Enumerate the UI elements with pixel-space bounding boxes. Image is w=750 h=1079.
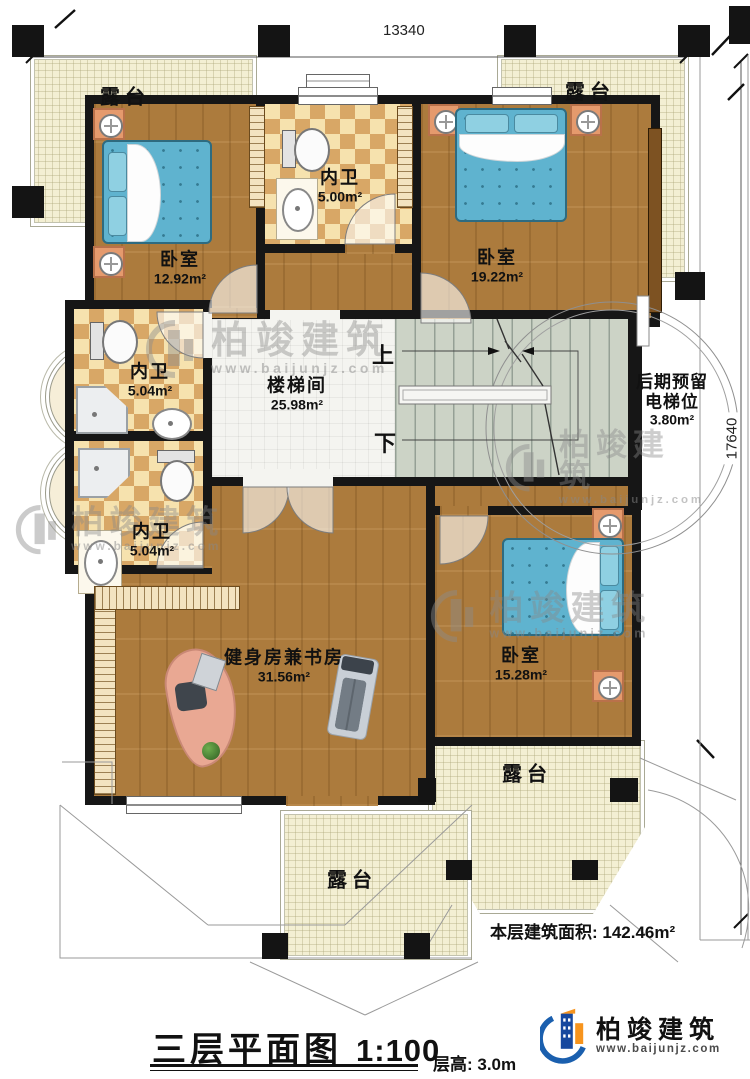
pillow xyxy=(600,590,619,630)
terrace-door-panel xyxy=(648,128,662,313)
door-gap-bath-low xyxy=(203,524,212,568)
room-name: 电梯位 xyxy=(636,392,708,412)
room-name: 楼梯间 xyxy=(267,376,327,397)
drain-dot xyxy=(168,421,173,426)
toilet-bath-mid xyxy=(90,318,138,362)
drain-dot xyxy=(94,466,99,471)
terrace-label-bottom-right: 露台 xyxy=(502,758,552,787)
pillow xyxy=(514,114,558,133)
toilet-bath-low xyxy=(155,450,195,502)
drain-dot xyxy=(295,206,300,211)
plant-icon xyxy=(202,742,220,760)
roof-edge-right xyxy=(700,55,750,940)
room-label-bath-mid: 内卫 5.04m² xyxy=(128,362,172,399)
dimension-top-value: 13340 xyxy=(378,22,430,39)
column xyxy=(675,272,705,300)
opening-hall-stairwell xyxy=(270,310,340,320)
title-scale: 1:100 xyxy=(356,1033,440,1068)
toilet-bath-top xyxy=(282,126,330,170)
nightstand xyxy=(93,246,125,278)
bed-sheet xyxy=(459,134,565,162)
column xyxy=(262,933,288,959)
room-area: 3.80m² xyxy=(636,412,708,428)
room-area: 15.28m² xyxy=(495,666,547,682)
room-label-bath-low: 内卫 5.04m² xyxy=(130,522,174,559)
room-label-gym: 健身房兼书房 31.56m² xyxy=(224,648,344,685)
floor-area-text: 本层建筑面积: 142.46m² xyxy=(490,918,675,943)
window-gym-bottom xyxy=(126,796,242,814)
room-name: 后期预留 xyxy=(636,372,708,392)
room-name: 卧室 xyxy=(495,646,547,667)
column xyxy=(258,25,290,57)
sink-bath-mid xyxy=(152,408,192,440)
room-label-bedroom-top-left: 卧室 12.92m² xyxy=(154,250,206,287)
closet-bath-top xyxy=(397,106,413,208)
room-area: 5.04m² xyxy=(130,542,174,558)
wall-segment xyxy=(85,565,94,805)
column xyxy=(418,778,436,802)
sink-bath-low xyxy=(84,540,118,586)
door-gap-gym-double xyxy=(243,469,333,487)
stair-down-label: 下 xyxy=(374,426,396,458)
wardrobe-gym-vertical xyxy=(94,590,116,795)
sink-bath-top xyxy=(282,188,314,232)
window-bath-top xyxy=(298,87,378,105)
column xyxy=(729,6,750,44)
door-gap-bath-mid xyxy=(203,312,212,358)
closet-bedroom-top-left xyxy=(249,106,265,208)
drain-dot xyxy=(98,559,103,564)
brand-logo: 柏竣建筑 www.baijunjz.com xyxy=(540,1008,721,1064)
lamp-icon xyxy=(598,676,622,700)
bed-top-left xyxy=(102,140,212,244)
title-underline-thin xyxy=(150,1070,418,1071)
room-name: 卧室 xyxy=(471,248,523,269)
room-area: 5.00m² xyxy=(318,188,362,204)
nightstand xyxy=(592,670,624,702)
room-area: 31.56m² xyxy=(224,668,344,684)
terrace-label-top-right: 露台 xyxy=(565,76,615,105)
floor-height-text: 层高: 3.0m xyxy=(433,1050,516,1075)
roof-gable-bottom xyxy=(250,962,478,1015)
lamp-icon xyxy=(99,114,123,138)
room-name: 健身房兼书房 xyxy=(224,648,344,669)
pillow xyxy=(108,196,127,236)
terrace-label-top-left: 露台 xyxy=(100,81,150,110)
nightstand xyxy=(93,108,125,140)
hall-floor-top xyxy=(256,244,421,320)
brand-logo-text: 柏竣建筑 www.baijunjz.com xyxy=(596,1017,721,1055)
drain-dot xyxy=(92,412,97,417)
treadmill-belt xyxy=(334,677,367,732)
lamp-icon xyxy=(99,252,123,276)
window-bedroom-top-right xyxy=(492,87,552,105)
brand-logo-icon xyxy=(540,1008,588,1064)
room-label-bedroom-top-right: 卧室 19.22m² xyxy=(471,248,523,285)
column xyxy=(12,25,44,57)
treadmill-console xyxy=(341,656,375,675)
pillow xyxy=(465,114,509,133)
window-bay-top xyxy=(306,74,370,88)
hall-floor-corridor xyxy=(426,486,640,508)
brand-site: www.baijunjz.com xyxy=(596,1043,721,1055)
floor-plan-canvas: 柏竣建筑 www.baijunjz.com 柏竣建筑 www.baijunjz.… xyxy=(0,0,750,1079)
toilet-bowl xyxy=(102,320,138,364)
door-gap-bedroom-top-left xyxy=(209,308,257,318)
room-label-elevator: 后期预留 电梯位 3.80m² xyxy=(636,372,708,427)
bed-sheet xyxy=(127,144,161,242)
column xyxy=(610,778,638,802)
room-name: 内卫 xyxy=(130,522,174,543)
lamp-icon xyxy=(576,110,600,134)
room-area: 12.92m² xyxy=(154,270,206,286)
room-name: 卧室 xyxy=(154,250,206,271)
door-gap-gym-terrace xyxy=(286,796,378,806)
column xyxy=(446,860,472,880)
lamp-icon xyxy=(598,514,622,538)
room-area: 19.22m² xyxy=(471,268,523,284)
door-gap-bedroom-bottom xyxy=(440,506,488,516)
room-label-bath-top: 内卫 5.00m² xyxy=(318,168,362,205)
toilet-bowl xyxy=(160,460,194,502)
room-label-bedroom-bottom: 卧室 15.28m² xyxy=(495,646,547,683)
nightstand xyxy=(570,104,602,136)
column xyxy=(572,860,598,880)
wardrobe-gym-horizontal xyxy=(94,586,240,610)
column xyxy=(678,25,710,57)
stair-up-label: 上 xyxy=(372,338,394,370)
dimension-ticks-right xyxy=(734,54,748,928)
stair-treads xyxy=(395,319,628,477)
pillow xyxy=(108,152,127,192)
room-name: 内卫 xyxy=(318,168,362,189)
toilet-bowl xyxy=(294,128,330,172)
title-underline-thick xyxy=(150,1064,418,1067)
room-name: 内卫 xyxy=(128,362,172,383)
nightstand xyxy=(592,508,624,540)
pillow xyxy=(600,546,619,586)
room-label-stairwell: 楼梯间 25.98m² xyxy=(267,376,327,413)
room-area: 25.98m² xyxy=(267,396,327,412)
brand-name: 柏竣建筑 xyxy=(596,1017,721,1043)
bed-sheet xyxy=(566,542,600,634)
column xyxy=(404,933,430,959)
dimension-right-value: 17640 xyxy=(723,413,740,465)
door-gap-bath-top xyxy=(345,244,395,254)
column xyxy=(12,186,44,218)
bed-top-right xyxy=(455,108,567,222)
room-area: 5.04m² xyxy=(128,382,172,398)
terrace-label-bottom-middle: 露台 xyxy=(327,864,377,893)
bed-bottom xyxy=(502,538,624,636)
column xyxy=(504,25,536,57)
